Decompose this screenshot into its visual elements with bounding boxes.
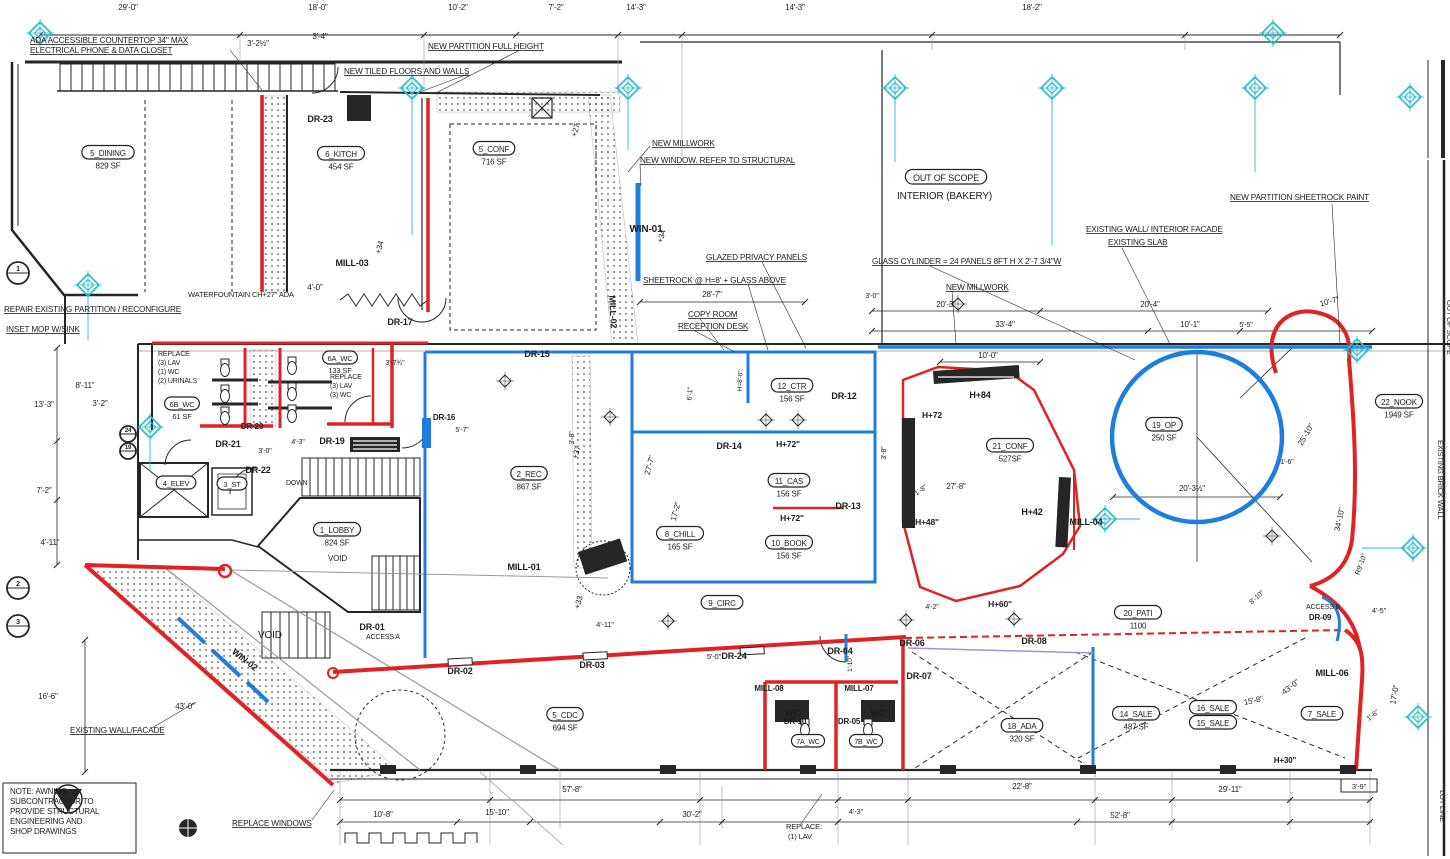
room-name: 5_DINING [90, 149, 126, 158]
room-name: 18_ADA [1008, 722, 1038, 731]
element-tag: H+30" [1274, 756, 1297, 765]
annotation-note: ACCESS A [366, 634, 400, 641]
room-area: 156 SF [777, 490, 802, 499]
dimension-text: 3'-2" [92, 399, 107, 408]
room-name: 7A_WC [796, 739, 819, 746]
dimension-text: 4'-11" [596, 620, 614, 629]
dimension-text: 4'-0" [307, 283, 322, 292]
element-tag: DR-03 [579, 660, 604, 670]
door-panel [448, 658, 472, 666]
element-tag: DR-08 [1021, 636, 1046, 646]
dimension-text: 10'-8" [373, 810, 393, 819]
toilet-bowl-icon [221, 412, 230, 425]
room-name: 12_CTR [778, 382, 807, 391]
dimension-text: 43'-0" [175, 702, 195, 711]
annotation-note: NEW MILLWORK [946, 283, 1009, 292]
wc-box-label: WC [785, 708, 800, 718]
room-name: 6B_WC [169, 400, 195, 409]
dimension-text: 1'-6" [1280, 459, 1294, 466]
dimension-text: 3'-8" [881, 446, 888, 460]
annotation-note: OUT OF SCOPE [1445, 300, 1450, 355]
room-name: OUT OF SCOPE [913, 173, 979, 183]
dimension-text: 5'-7" [455, 427, 469, 434]
element-tag: MILL-08 [754, 684, 784, 693]
dimension-text: 22'-8" [1012, 782, 1032, 791]
dimension-text: 5'-0" [707, 652, 722, 661]
wall-poche-region [250, 350, 276, 426]
floor-plan-svg: 12324195_DINING829 SF6_KITCH454 SF5_CONF… [0, 0, 1450, 859]
room-name: 6_KITCH [325, 150, 357, 159]
annotation-note: SHOP DRAWINGS [10, 827, 77, 836]
annotation-note: (3) WC [330, 392, 351, 399]
element-tag: DR-22 [245, 465, 270, 475]
room-name: 9_CIRC [708, 599, 736, 608]
annotation-note: REPLACE [330, 374, 362, 381]
dimension-text: 52'-8" [1110, 811, 1130, 820]
dimension-text: 18'-2" [1022, 3, 1042, 12]
element-tag: H+84 [969, 390, 990, 400]
element-tag: DR-24 [721, 651, 746, 661]
room-area: 716 SF [482, 158, 507, 167]
wall-poche-region [572, 356, 592, 568]
element-tag: DR-01 [359, 622, 384, 632]
paper-background [0, 0, 1450, 859]
annotation-note: REPLACE: [786, 822, 822, 831]
room-area: 1100 [1130, 622, 1147, 631]
dimension-text: H=8'-6" [736, 370, 744, 392]
room-area: 487 SF [1124, 723, 1149, 732]
room-area: 61 SF [172, 412, 192, 421]
annotation-note: (3) LAV [330, 383, 353, 390]
dimension-text: 3'-0" [258, 448, 272, 455]
room-name: 15_SALE [1197, 719, 1230, 728]
room-area: 165 SF [668, 543, 693, 552]
room-name: 5_CDC [552, 711, 578, 720]
annotation-note: INSET MOP W/SINK [6, 325, 80, 334]
element-tag: MILL-04 [1070, 517, 1103, 527]
toilet-bowl-icon [221, 390, 230, 403]
millwork-bar [1340, 765, 1356, 774]
element-tag: DR-17 [387, 317, 412, 327]
dimension-text: 10'-1" [1180, 320, 1200, 329]
millwork-bar [380, 765, 396, 774]
dimension-text: 6'-1" [686, 386, 694, 400]
room-name: 1_LOBBY [320, 526, 355, 535]
annotation-note: EXISTING BRICK WALL [1436, 440, 1445, 519]
annotation-note: (1) WC [158, 369, 179, 376]
annotation-note: EXISTING SLAB [1108, 238, 1168, 247]
dimension-text: 14'-3" [626, 3, 646, 12]
annotation-note: NEW PARTITION FULL HEIGHT [428, 42, 544, 51]
dimension-text: 10'-0" [978, 351, 998, 360]
room-name: 22_NOOK [1381, 398, 1418, 407]
room-name: 19_OP [1152, 421, 1176, 430]
dimension-text: 3'-0" [865, 293, 879, 300]
annotation-note: SHEETROCK @ H=8' + GLASS ABOVE [643, 276, 786, 285]
dimension-text: 3'-4" [312, 32, 327, 41]
wall-poche-region [264, 96, 286, 292]
dimension-text: 20'-4" [1140, 300, 1160, 309]
annotation-note: GLAZED PRIVACY PANELS [706, 253, 808, 262]
annotation-note: COPY ROOM [688, 310, 738, 319]
dimension-text: 18'-0" [308, 3, 328, 12]
millwork-bar [1080, 765, 1096, 774]
element-tag: H+48" [915, 517, 939, 527]
annotation-note: ENGINEERING AND [10, 817, 83, 826]
room-area: 527SF [999, 455, 1022, 464]
element-tag: DR-04 [827, 646, 852, 656]
annotation-note: NEW WINDOW. REFER TO STRUCTURAL [640, 156, 796, 165]
dimension-text: 30'-2" [682, 810, 702, 819]
annotation-note: (3) LAV [158, 360, 181, 367]
room-name: 7_SALE [1308, 710, 1336, 719]
annotation-note: REPAIR EXISTING PARTITION / RECONFIGURE [4, 305, 182, 314]
room-name: 14_SALE [1120, 710, 1153, 719]
wc-box-label: WC [871, 708, 886, 718]
dimension-text: 28'-7" [702, 290, 722, 299]
millwork-bar [660, 765, 676, 774]
element-tag: H+42 [1021, 507, 1042, 517]
detail-bubble-number: 2 [16, 581, 20, 588]
dimension-text: 4'-11" [41, 538, 60, 547]
room-area: 824 SF [325, 539, 350, 548]
element-tag: H+72" [776, 439, 800, 449]
room-name: 6A_WC [327, 354, 353, 363]
annotation-note: VOID [328, 554, 347, 563]
annotation-note: NEW PARTITION SHEETROCK PAINT [1230, 193, 1369, 202]
millwork-bar [902, 418, 915, 528]
element-tag: DR-21 [215, 439, 240, 449]
room-name: 21_CONF [993, 442, 1028, 451]
dimension-text: 29'-0" [118, 3, 138, 12]
detail-bubble-number: 1 [16, 266, 20, 273]
annotation-note: ADA ACCESSIBLE COUNTERTOP 34" MAX [30, 36, 189, 45]
dimension-text: 20'-3" [936, 300, 956, 309]
dimension-text: 27'-8" [946, 482, 966, 491]
detail-bubble-number: 3 [16, 619, 20, 626]
element-tag: DR-06 [899, 638, 924, 648]
room-name: 3_ST [223, 480, 241, 489]
millwork-bar [1220, 765, 1236, 774]
element-tag: DR-16 [433, 413, 456, 422]
door-panel [583, 652, 607, 660]
dimension-text: 4'-3" [849, 807, 864, 816]
room-name: 5_CONF [479, 145, 510, 154]
detail-bubble-number: 19 [125, 445, 132, 451]
annotation-note: ACCESS B [1306, 604, 1341, 611]
element-tag: MILL-01 [508, 562, 541, 572]
room-name: 16_SALE [1197, 704, 1230, 713]
dimension-text: 33'-4" [995, 320, 1015, 329]
toilet-bowl-icon [288, 410, 297, 423]
new-door-panel [422, 418, 431, 448]
room-name: 4_ELEV [163, 479, 190, 488]
dimension-text: 1'-10" [847, 655, 854, 672]
room-area: 1949 SF [1384, 411, 1413, 420]
element-tag: DR-02 [447, 666, 472, 676]
floor-plan-page: 12324195_DINING829 SF6_KITCH454 SF5_CONF… [0, 0, 1450, 859]
element-tag: DR-12 [831, 391, 856, 401]
element-tag: DR-20 [241, 422, 264, 431]
detail-bubble-number: 24 [125, 428, 132, 434]
element-tag: MILL-03 [336, 258, 369, 268]
dimension-text: 20'-3½" [1179, 484, 1205, 493]
dimension-text: 4'-3" [291, 439, 305, 446]
millwork-bar [520, 765, 536, 774]
annotation-note: VOID [258, 630, 282, 641]
room-name: 10_BOOK [771, 539, 807, 548]
toilet-bowl-icon [288, 388, 297, 401]
annotation-note: PROVIDE STRUCTURAL [10, 807, 100, 816]
toilet-bowl-icon [221, 364, 230, 377]
annotation-note: DOWN [286, 480, 308, 487]
dimension-text: 14'-3" [785, 3, 805, 12]
element-tag: DR-10 [784, 717, 807, 726]
element-tag: MILL-06 [1316, 668, 1349, 678]
dimension-text: 4'-5" [1372, 606, 1387, 615]
element-tag: H+72 [922, 410, 942, 420]
room-name: 2_REC [516, 470, 541, 479]
dimension-text: 3'-8" [569, 431, 576, 445]
dimension-text: 3'-2½" [247, 39, 269, 48]
element-tag: DR-13 [835, 501, 860, 511]
element-tag: DR-05 [838, 717, 861, 726]
element-tag: DR-07 [906, 671, 931, 681]
annotation-note: INTERIOR (BAKERY) [897, 191, 992, 202]
room-name: 7B_WC [854, 739, 877, 746]
element-tag: H+72" [780, 513, 804, 523]
annotation-note: NOTE: AWNING [10, 787, 67, 796]
annotation-note: EXISTING WALL/FACADE [70, 726, 165, 735]
dimension-text: 8'-11" [76, 381, 95, 390]
room-area: 250 SF [1152, 434, 1177, 443]
annotation-note: ELECTRICAL PHONE & DATA CLOSET [30, 46, 172, 55]
dimension-text: 16'-6" [38, 692, 58, 701]
annotation-note: (1) LAV [788, 832, 812, 841]
dimension-text: 3'-9" [1352, 782, 1367, 791]
annotation-note: RECEPTION DESK [678, 322, 749, 331]
annotation-note: WATERFOUNTAIN CH+27" ADA [188, 290, 294, 299]
dimension-text: 13'-3" [34, 400, 54, 409]
element-tag: DR-09 [1309, 613, 1332, 622]
dimension-text: 3'-7¾" [386, 360, 406, 367]
element-tag: DR-14 [716, 441, 741, 451]
element-tag: DR-19 [319, 436, 344, 446]
annotation-note: REPLACE WINDOWS [232, 819, 312, 828]
dimension-text: 7'-2" [36, 486, 51, 495]
room-area: 694 SF [553, 724, 578, 733]
dimension-text: 15'-10" [485, 808, 509, 817]
element-tag: DR-15 [524, 349, 549, 359]
element-tag: MILL-07 [844, 684, 874, 693]
room-area: 320 SF [1010, 735, 1035, 744]
dimension-text: 5'-5" [1239, 322, 1253, 329]
element-tag: H+60" [988, 599, 1012, 609]
annotation-note: GLASS CYLINDER = 24 PANELS 8FT H X 2'-7 … [872, 257, 1062, 266]
dimension-text: 57'-8" [562, 785, 582, 794]
annotation-note: EXISTING WALL/ INTERIOR FACADE [1086, 225, 1223, 234]
room-name: 8_CHILL [665, 530, 696, 539]
annotation-note: NEW TILED FLOORS AND WALLS [344, 67, 470, 76]
annotation-note: SUBCONTRACTOR TO [10, 797, 93, 806]
element-tag: MILL-02 [607, 295, 619, 329]
annotation-note: (2) URINALS [158, 378, 198, 385]
room-area: 156 SF [780, 395, 805, 404]
room-area: 156 SF [777, 552, 802, 561]
dimension-text: 10'-2" [448, 3, 468, 12]
room-name: 20_PATI [1124, 609, 1153, 618]
room-area: 454 SF [329, 163, 354, 172]
millwork-bar [940, 765, 956, 774]
room-area: 867 SF [517, 483, 542, 492]
annotation-note: NEW MILLWORK [652, 139, 715, 148]
room-name: 11_CAS [775, 477, 803, 486]
toilet-bowl-icon [288, 362, 297, 375]
annotation-note: LOT LINE [1438, 790, 1447, 822]
room-area: 829 SF [96, 162, 121, 171]
annotation-note: REPLACE [158, 351, 190, 358]
millwork-bar [347, 95, 371, 121]
dimension-text: 29'-11" [1218, 785, 1241, 794]
dimension-text: 7'-2" [548, 3, 563, 12]
dimension-text: 4'-2" [925, 604, 939, 611]
millwork-bar [800, 765, 816, 774]
element-tag: DR-23 [307, 114, 332, 124]
